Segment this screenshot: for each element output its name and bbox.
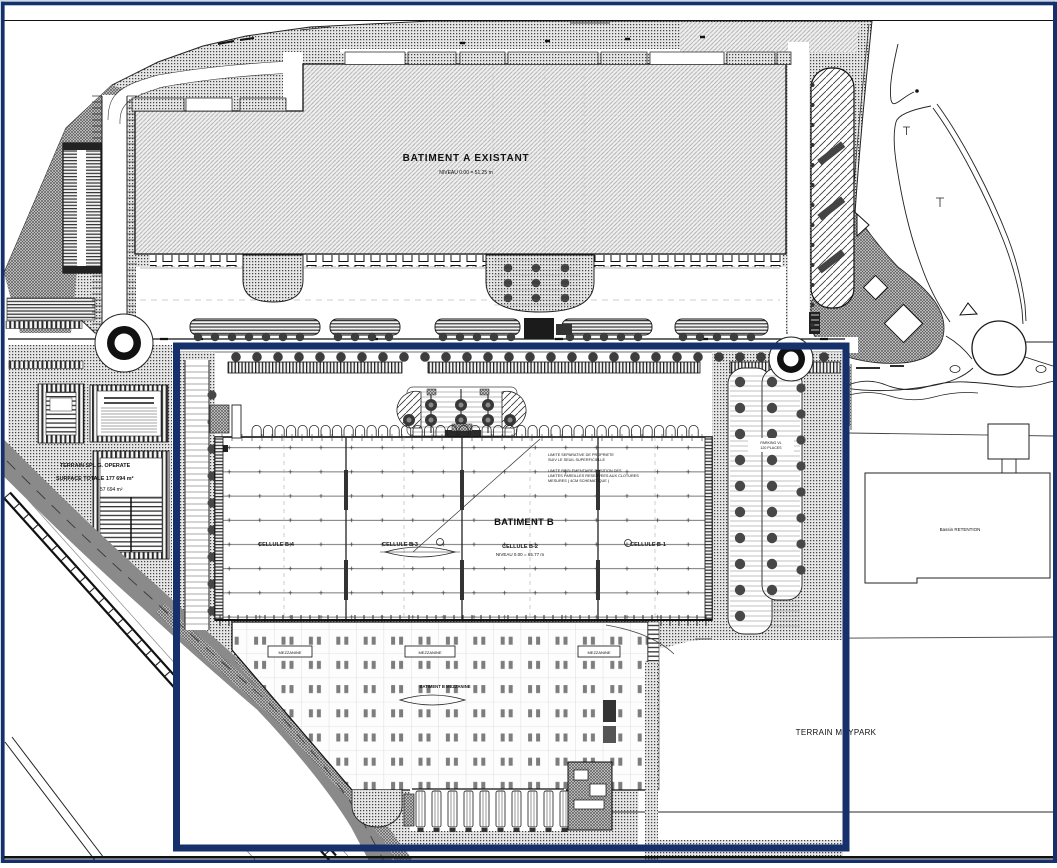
svg-text:MEZZANINE: MEZZANINE (278, 650, 301, 655)
svg-text:Bassin RETENTION: Bassin RETENTION (940, 527, 981, 532)
svg-text:CELLULE B-1: CELLULE B-1 (630, 542, 666, 548)
svg-text:TERRAIN MRYPARK: TERRAIN MRYPARK (796, 728, 877, 737)
svg-text:LIMITES PAREILLES RESERVEES AU: LIMITES PAREILLES RESERVEES AUX CLOTURES (548, 474, 639, 478)
svg-text:PARKING VL: PARKING VL (760, 441, 781, 445)
svg-text:TERRAIN SPL G. OPERATE: TERRAIN SPL G. OPERATE (60, 463, 131, 469)
svg-text:BATIMENT A EXISTANT: BATIMENT A EXISTANT (403, 153, 530, 164)
svg-text:BATIMENT B: BATIMENT B (494, 517, 554, 528)
svg-text:57 694 m²: 57 694 m² (100, 487, 123, 493)
svg-text:SURFACE TOTALE 177 694 m²: SURFACE TOTALE 177 694 m² (56, 476, 134, 482)
svg-text:SUIV LE SEUIL SUPERFICIELLE: SUIV LE SEUIL SUPERFICIELLE (548, 458, 606, 462)
svg-text:NIVEAU 0.00 = 51.25 m: NIVEAU 0.00 = 51.25 m (439, 170, 493, 176)
svg-text:120 PLACES: 120 PLACES (760, 446, 782, 450)
svg-text:MEZZANINE: MEZZANINE (418, 650, 441, 655)
svg-text:LIMITE SEPARATIVE DE PROPRIETE: LIMITE SEPARATIVE DE PROPRIETE (548, 453, 614, 457)
svg-text:NIVEAU 0.00 = 65.77 m: NIVEAU 0.00 = 65.77 m (496, 552, 544, 557)
svg-text:CELLULE B-2: CELLULE B-2 (502, 544, 538, 550)
svg-text:CELLULE B-4: CELLULE B-4 (258, 542, 295, 548)
svg-text:MESURES ( 4CM SCHEMATIQUE ): MESURES ( 4CM SCHEMATIQUE ) (548, 479, 610, 483)
svg-text:MEZZANINE: MEZZANINE (587, 650, 610, 655)
svg-text:LIMITE REGLEMENTAIRE POSITION: LIMITE REGLEMENTAIRE POSITION DES (548, 469, 622, 473)
svg-text:BATIMENT B MEZZANINE: BATIMENT B MEZZANINE (419, 684, 470, 689)
